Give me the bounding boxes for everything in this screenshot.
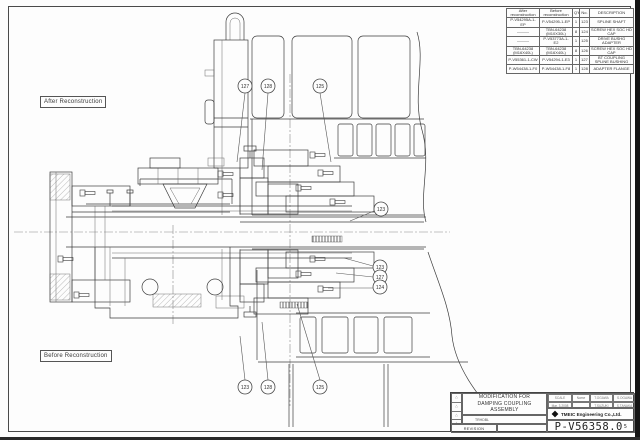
drawing-sheet: 127 128 125 123 123 (0, 0, 640, 440)
before-reconstruction-assembly (216, 249, 468, 427)
svg-text:128: 128 (264, 84, 273, 90)
revision-label: REVISION (451, 424, 497, 433)
checked-by-cell: S.OGAWA (613, 394, 635, 402)
col-item-no: No. (580, 9, 590, 18)
table-row: P-V54295A-1-EP P-V54295-1-EP 1 123 SPLIN… (507, 18, 634, 27)
drawn-by-cell: T.OGAWA (590, 394, 613, 402)
company-row: TMEIC Engineering Co.,Ltd. (547, 408, 635, 420)
scale-cell: SCALE (548, 394, 572, 402)
balloon-bottom-1: 123 (238, 336, 252, 394)
svg-text:127: 127 (241, 84, 250, 90)
drawing-title-line1: MODIFICATION FOR (479, 394, 530, 401)
table-row: P-W54438-1-F0 P-W54438-1-F8 1 128 ADAPTE… (507, 65, 634, 74)
title-block: △ △ △ △ REVISION MODIFICATION FOR DAMPIN… (450, 392, 634, 432)
svg-text:128: 128 (264, 385, 273, 391)
scan-edge-right (635, 0, 640, 440)
table-row: ——— P-V53773A-1-E2 1 125 DRIVE BUSHG ADA… (507, 37, 634, 46)
break-lines (417, 32, 506, 430)
parts-table-header: After reconstruction Before reconstructi… (507, 9, 634, 18)
approval-grid: SCALE Name T.OGAWA S.OGAWA Mar. 3.2008 T… (547, 393, 635, 408)
table-row: ——— TBN-64238 (M10X30L) 8 124 SCREW HEX … (507, 27, 634, 36)
company-logo-icon (552, 411, 559, 418)
name-cell: Name (572, 394, 590, 402)
reference-code: TRHDBL (462, 415, 547, 424)
company-name: TMEIC Engineering Co.,Ltd. (561, 412, 621, 417)
drawing-number-revision: 5 (624, 424, 628, 430)
col-description: DESCRIPTION (590, 9, 634, 18)
col-quantity: Q'ty (573, 9, 580, 18)
svg-text:125: 125 (316, 385, 325, 391)
balloon-right-mid: 123 (350, 202, 388, 221)
svg-text:123: 123 (377, 207, 386, 213)
after-reconstruction-label: After Reconstruction (40, 96, 106, 108)
col-before-reconstruction: Before reconstruction (540, 9, 573, 18)
balloon-top-3: 125 (313, 79, 331, 162)
parts-table: After reconstruction Before reconstructi… (506, 8, 634, 74)
drawing-title-line2: DAMPING COUPLING ASSEMBLY (463, 401, 546, 415)
col-after-reconstruction: After reconstruction (507, 9, 540, 18)
drawing-title: MODIFICATION FOR DAMPING COUPLING ASSEMB… (462, 393, 547, 415)
svg-text:125: 125 (316, 84, 325, 90)
revision-marks-column: △ △ △ △ (451, 393, 462, 424)
balloon-bottom-2: 128 (261, 322, 275, 394)
after-reconstruction-assembly (205, 13, 426, 222)
svg-text:123: 123 (241, 385, 250, 391)
before-reconstruction-label: Before Reconstruction (40, 350, 112, 362)
drawing-number: P-V56358.05 (547, 420, 635, 433)
table-row: P-V55361-1-CW P-V54294-1-E3 1 127 BT COU… (507, 55, 634, 64)
balloon-top-1: 127 (237, 79, 252, 162)
blank-cell (497, 424, 547, 433)
shaft-section (66, 206, 426, 308)
table-row: TBN-64238 (M16X40L) TBN-64238 (M16X40L) … (507, 46, 634, 55)
svg-text:124: 124 (376, 285, 385, 291)
balloon-top-2: 128 (261, 79, 275, 170)
